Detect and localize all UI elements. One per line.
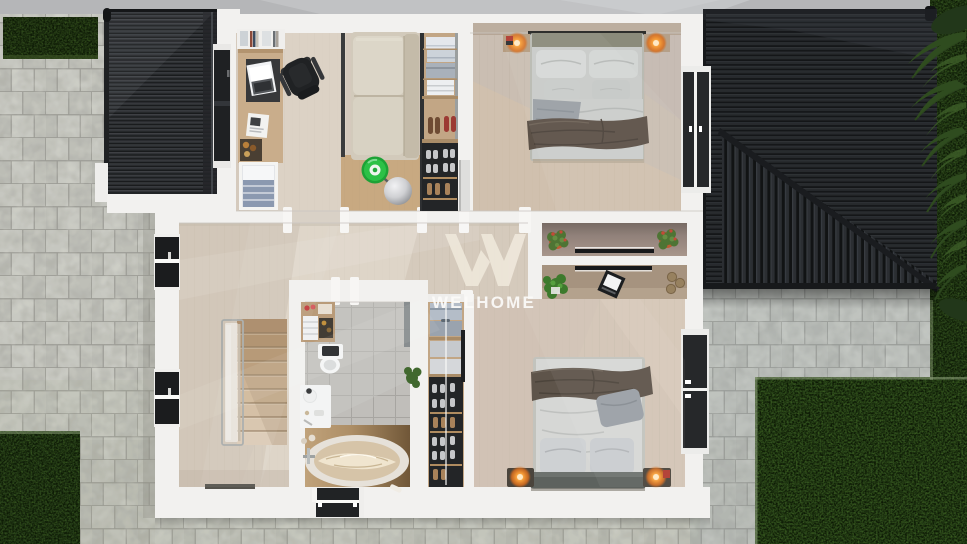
- svg-text:WELHOME: WELHOME: [432, 293, 536, 312]
